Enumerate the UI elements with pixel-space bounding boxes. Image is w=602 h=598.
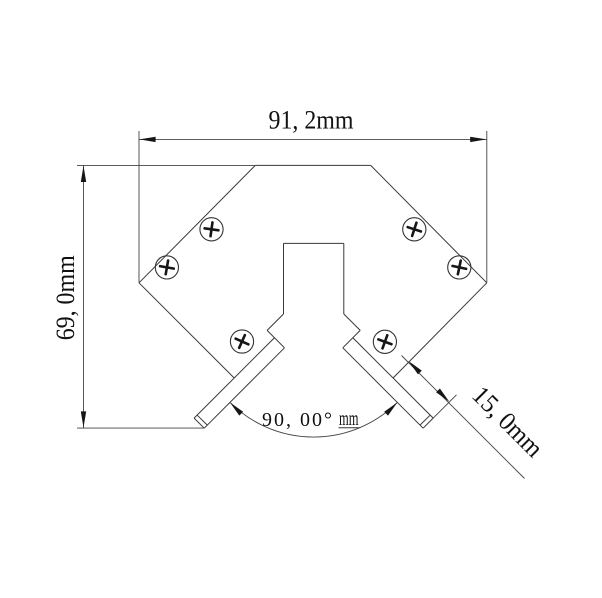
svg-text:mm: mm [339,406,359,430]
svg-text:90, 00°: 90, 00° [262,409,334,431]
svg-text:69, 0mm: 69, 0mm [52,255,80,341]
svg-text:91, 2mm: 91, 2mm [268,107,354,135]
